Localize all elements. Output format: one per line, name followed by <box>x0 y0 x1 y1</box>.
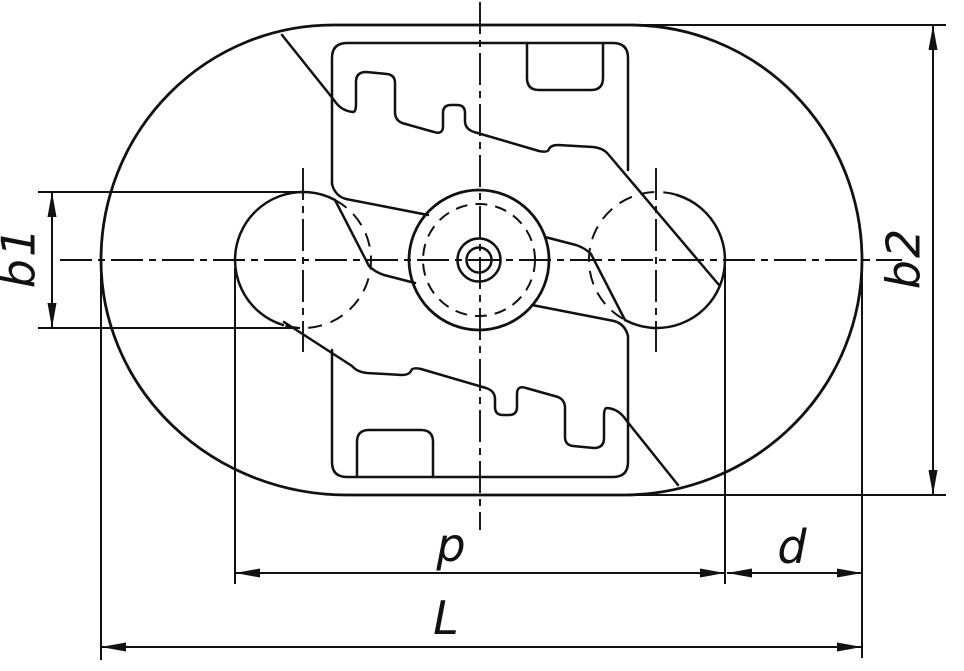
dim-label-d: d <box>777 520 808 574</box>
dim-label-b1: b1 <box>0 226 46 288</box>
technical-drawing-canvas: b1 b2 p d L <box>0 0 964 671</box>
drawing-background <box>0 0 964 671</box>
dim-label-L: L <box>433 591 461 645</box>
dim-label-p: p <box>435 518 467 572</box>
dim-label-b2: b2 <box>877 227 931 289</box>
technical-drawing-page: b1 b2 p d L <box>0 0 964 671</box>
